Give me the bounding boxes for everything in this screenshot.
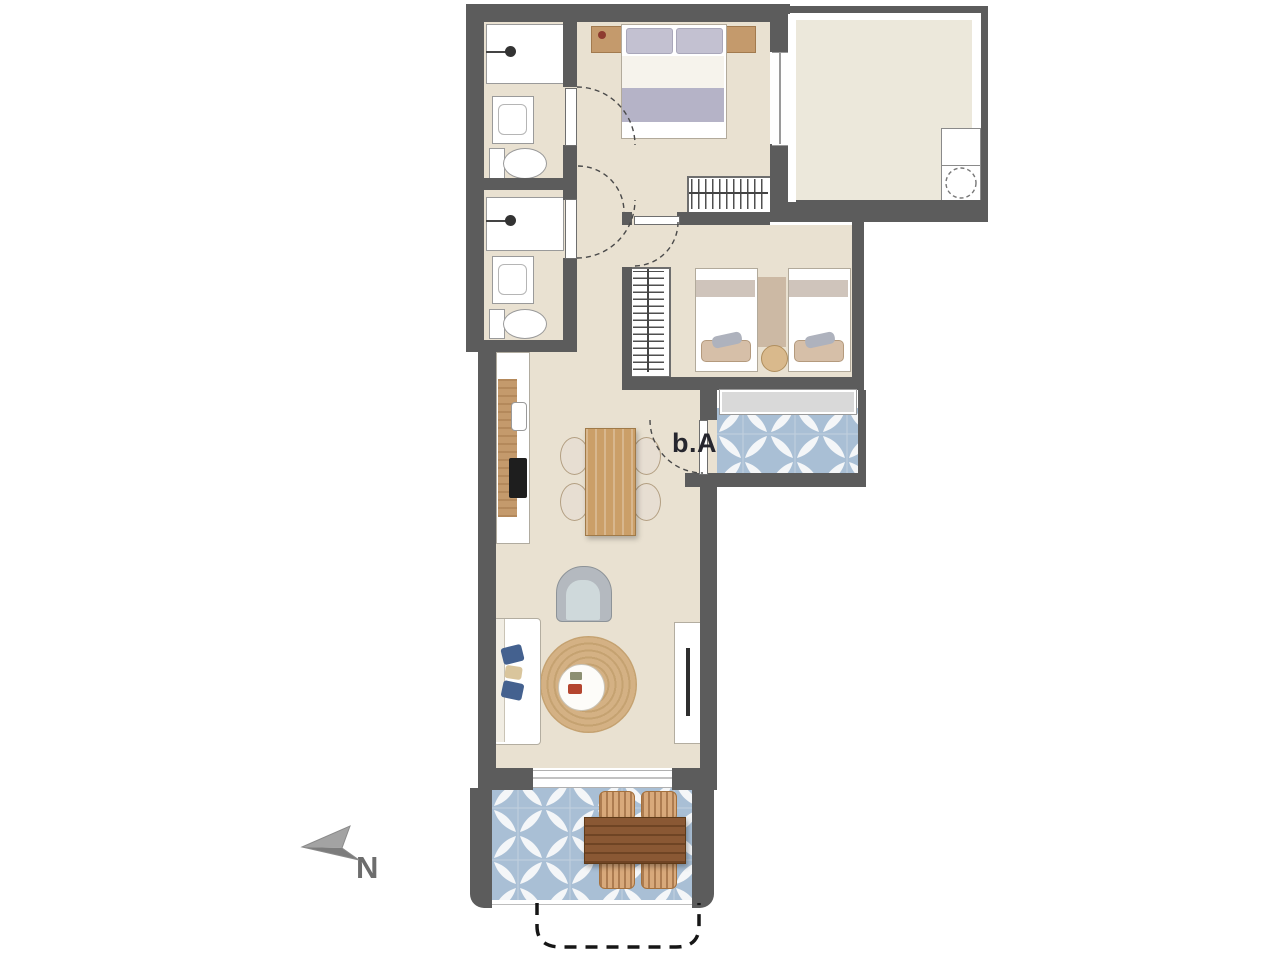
wall-top (466, 4, 790, 22)
nightstand-left-plant (598, 31, 606, 39)
wall-bedroom2-bottom (622, 377, 864, 390)
armchair-seat (566, 580, 600, 620)
bed-blanket (622, 88, 724, 122)
terrace-boiler-box (941, 165, 981, 203)
window-bedroom1-glass-line (779, 52, 781, 144)
shower-2 (486, 197, 564, 251)
north-arrow-icon (302, 826, 359, 860)
coffee-table-book (570, 672, 582, 680)
kitchen-sink (511, 402, 527, 431)
threshold-bottom-terrace-line (533, 777, 672, 779)
north-label: N (356, 850, 378, 886)
shower-1 (486, 24, 564, 84)
bed-sheet (622, 56, 724, 88)
terrace-unit-box (941, 128, 981, 167)
bed-pillow-right (676, 28, 723, 54)
sink-1-basin (498, 104, 527, 135)
wall-bath2-bottom (478, 340, 577, 352)
shower-1-drain-icon (505, 46, 516, 57)
roof-terrace-door-strip (788, 14, 796, 202)
bedside-runner-rug (758, 277, 786, 347)
wall-roof-terrace-top (790, 6, 988, 13)
kitchen-cooktop (509, 458, 527, 498)
wardrobe-1-clothes (691, 179, 766, 209)
wall-bath-divider (478, 178, 563, 190)
dining-chair-4 (632, 483, 661, 521)
wall-left-lower (478, 345, 496, 788)
wall-living-bottom-right (672, 768, 717, 790)
dining-table (585, 428, 636, 536)
threshold-bottom-terrace (533, 770, 672, 788)
wall-roof-terrace-right (981, 6, 988, 222)
sofa-pillow-beige (504, 665, 523, 680)
nightstand-right (723, 26, 756, 53)
wall-ba-terrace-bottom (685, 473, 865, 487)
unit-label: b.A (672, 428, 717, 459)
wall-bedroom1-right-a (770, 22, 790, 52)
wall-mid-jamb (622, 212, 632, 225)
wardrobe-1-rail (689, 192, 768, 194)
wall-ba-terrace-right (858, 390, 866, 487)
wall-mid-horizontal (677, 212, 770, 225)
wall-living-bottom-left (478, 768, 533, 790)
toilet-1-bowl (503, 148, 547, 179)
bedside-stool (761, 345, 788, 372)
toilet-2-bowl (503, 309, 547, 339)
wall-terrace-bottom-right (770, 200, 988, 222)
terrace-ba-tiles (717, 408, 858, 473)
coffee-table-tray (568, 684, 582, 694)
single-bed-right-blanket (789, 280, 848, 297)
projection-outline (537, 903, 699, 947)
sink-2-basin (498, 264, 527, 295)
wall-terrace-right (692, 790, 714, 908)
wall-ba-door-top (700, 377, 717, 420)
nightstand-left (591, 26, 624, 53)
tv-screen (686, 648, 690, 716)
terrace-bottom-edge (492, 900, 692, 905)
roof-terrace-margin-top (795, 13, 981, 20)
single-bed-left-blanket (696, 280, 755, 297)
wardrobe-2-rail (647, 269, 649, 372)
outdoor-table (584, 817, 686, 864)
door-leaf-bedroom2 (634, 216, 680, 225)
wall-bath-right-a (563, 22, 577, 87)
wall-bedroom2-right (852, 222, 864, 390)
wall-bath-right-b (563, 145, 577, 200)
wall-bedroom2-left (622, 267, 632, 377)
wall-living-right (700, 473, 717, 768)
window-ba-terrace (720, 390, 856, 414)
floor-plan: b.A N (0, 0, 1280, 960)
door-leaf-bath2 (565, 199, 577, 259)
wall-bath-right-c (563, 258, 577, 352)
door-leaf-bath1 (565, 88, 577, 146)
wall-terrace-left (470, 788, 492, 908)
bed-pillow-left (626, 28, 673, 54)
dining-chair-3 (632, 437, 661, 475)
shower-2-drain-icon (505, 215, 516, 226)
